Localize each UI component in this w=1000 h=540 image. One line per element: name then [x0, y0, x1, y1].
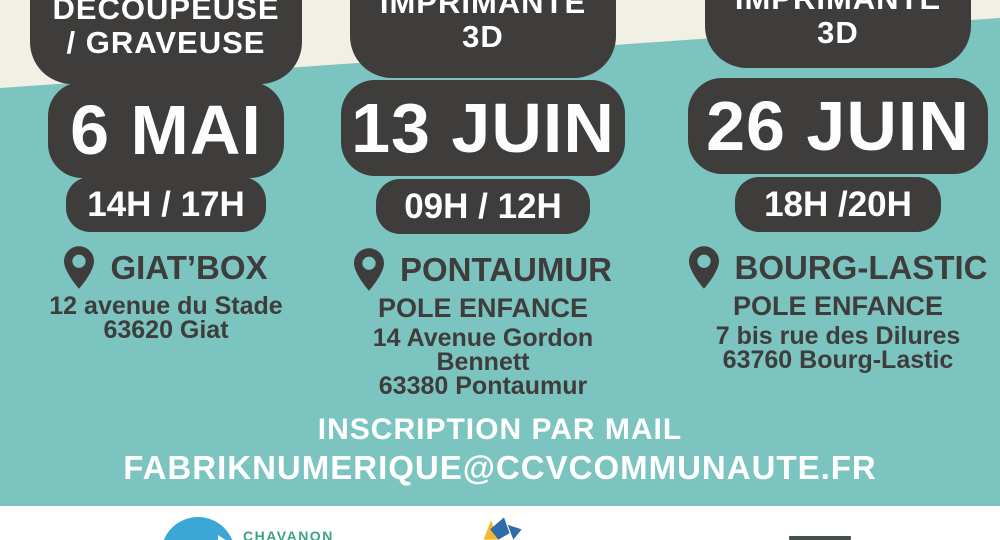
map-pin-icon	[689, 246, 719, 289]
address-line: 14 Avenue Gordon	[373, 327, 593, 350]
address-block: 14 Avenue Gordon Bennett 63380 Pontaumur	[373, 327, 593, 398]
date-badge: 13 JUIN	[341, 80, 625, 176]
location-name: GIAT’BOX	[110, 248, 267, 288]
location-row: PONTAUMUR	[354, 248, 612, 291]
registration-title: INSCRIPTION PAR MAIL	[0, 413, 1000, 446]
registration-block: INSCRIPTION PAR MAIL FABRIKNUMERIQUE@CCV…	[0, 413, 1000, 486]
address-line: 63760 Bourg-Lastic	[716, 349, 961, 372]
address-line: 63620 Giat	[49, 319, 282, 342]
tool-badge: DECOUPEUSE / GRAVEUSE	[30, 0, 302, 84]
date-badge: 6 MAI	[48, 82, 284, 178]
session-column-pontaumur: IMPRIMANTE 3D 13 JUIN 09H / 12H PONTAUMU…	[330, 0, 636, 398]
venue-name: POLE ENFANCE	[378, 296, 588, 321]
tool-name-line2: / GRAVEUSE	[30, 26, 302, 60]
address-block: 12 avenue du Stade 63620 Giat	[49, 295, 282, 342]
tool-badge: IMPRIMANTE 3D	[350, 0, 616, 78]
chavanon-logo-text: CHAVANON	[243, 528, 334, 540]
location-row: GIAT’BOX	[64, 246, 267, 289]
chavanon-logo-arrow-icon	[218, 535, 227, 540]
session-column-giat: DECOUPEUSE / GRAVEUSE 6 MAI 14H / 17H GI…	[6, 0, 326, 342]
address-line: Bennett	[373, 351, 593, 374]
map-pin-icon	[64, 246, 94, 289]
tool-name-line1: DECOUPEUSE	[30, 0, 302, 26]
tool-name-line1: IMPRIMANTE	[350, 0, 616, 20]
chavanon-logo-circle: cc	[161, 517, 235, 540]
event-poster: DECOUPEUSE / GRAVEUSE 6 MAI 14H / 17H GI…	[0, 0, 1000, 540]
address-line: 12 avenue du Stade	[49, 295, 282, 318]
address-line: 63380 Pontaumur	[373, 375, 593, 398]
location-name: PONTAUMUR	[400, 250, 612, 290]
location-name: BOURG-LASTIC	[735, 248, 988, 288]
tool-name-line2: 3D	[350, 20, 616, 54]
address-line: 7 bis rue des Dilures	[716, 325, 961, 348]
time-badge: 14H / 17H	[66, 177, 266, 232]
registration-email: FABRIKNUMERIQUE@CCVCOMMUNAUTE.FR	[0, 450, 1000, 486]
partner-mountains-logo-icon	[478, 517, 530, 540]
tool-badge: IMPRIMANTE 3D	[705, 0, 971, 68]
time-badge: 18H /20H	[735, 177, 941, 232]
tool-name-line2: 3D	[705, 16, 971, 50]
location-row: BOURG-LASTIC	[689, 246, 988, 289]
footer-band: cc CHAVANON	[0, 506, 1000, 540]
tool-name-line1: IMPRIMANTE	[705, 0, 971, 16]
venue-name: POLE ENFANCE	[733, 294, 943, 319]
map-pin-icon	[354, 248, 384, 291]
address-block: 7 bis rue des Dilures 63760 Bourg-Lastic	[716, 325, 961, 372]
partner-logo-bar	[789, 536, 851, 540]
time-badge: 09H / 12H	[376, 179, 590, 234]
date-badge: 26 JUIN	[688, 78, 988, 174]
session-column-bourg-lastic: IMPRIMANTE 3D 26 JUIN 18H /20H BOURG-LAS…	[678, 0, 998, 372]
